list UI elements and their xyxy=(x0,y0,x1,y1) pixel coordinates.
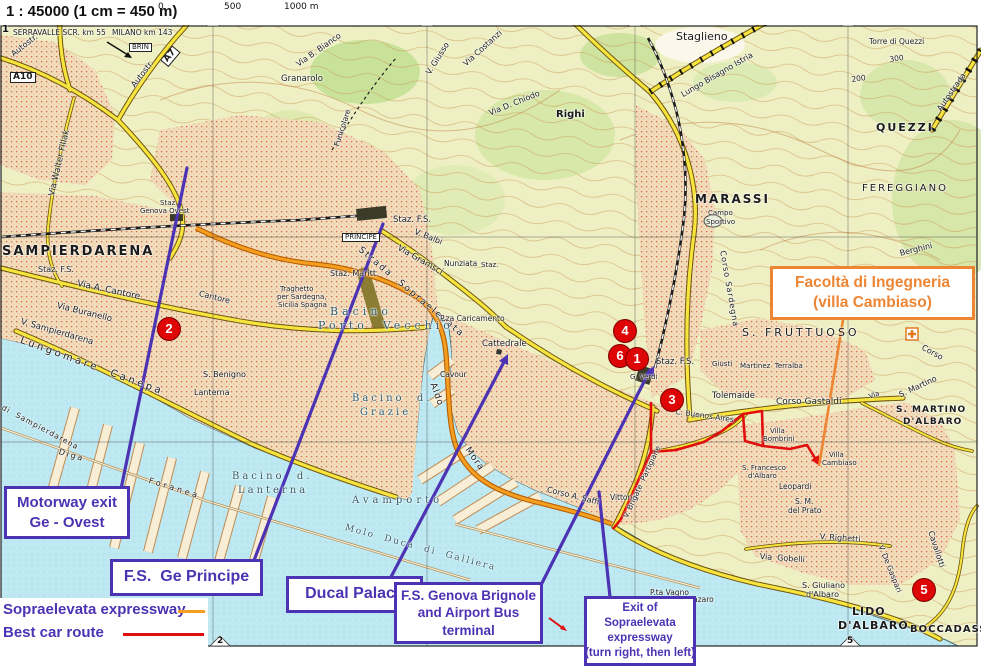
grid-tick-top-1: 1 xyxy=(2,24,9,35)
callout-line: F.S. Ge Principe xyxy=(124,567,249,588)
callout-line: Exit of xyxy=(622,601,657,616)
callout-line: expressway xyxy=(607,631,672,646)
legend-swatch-sopraelevata xyxy=(178,610,205,613)
legend-item-sopraelevata: Sopraelevata expressway xyxy=(0,598,208,621)
callout-line: Ge - Ovest xyxy=(29,513,104,533)
route-marker-4: 4 xyxy=(614,320,636,342)
scale-bar-label-0: 0 xyxy=(158,2,164,12)
callout-line: and Airport Bus xyxy=(418,604,520,622)
legend-item-best-route: Best car route xyxy=(0,621,208,644)
callout-line: Facoltà di Ingegneria xyxy=(795,273,950,293)
callout-line: Motorway exit xyxy=(17,493,117,513)
legend-label: Best car route xyxy=(3,624,104,641)
scale-bar-label-500: 500 xyxy=(224,2,241,12)
legend-swatch-best-route xyxy=(123,633,204,636)
map-header: 1 : 45000 (1 cm = 450 m) 0 500 1000 m xyxy=(0,0,981,25)
route-marker-2: 2 xyxy=(158,318,180,340)
marassi-stadium xyxy=(704,215,722,227)
callout-line: F.S. Genova Brignole xyxy=(401,587,536,605)
hospital-icon xyxy=(906,328,918,340)
scale-text: 1 : 45000 (1 cm = 450 m) xyxy=(6,3,177,20)
genoa-map: SERRAVALLE SCR. km 55MILANO km 143BRINAu… xyxy=(0,0,981,670)
callout-line: (villa Cambiaso) xyxy=(813,293,932,313)
scale-bar-label-1000: 1000 m xyxy=(284,2,319,12)
callout-motorway-exit: Motorway exitGe - Ovest xyxy=(4,486,130,539)
callout-line: Ducal Palace xyxy=(305,584,404,605)
callout-sopraelevata-exit: Exit ofSopraelevataexpressway(turn right… xyxy=(584,596,696,666)
cattedrale-mark xyxy=(496,349,502,355)
callout-facolta-ingegneria: Facoltà di Ingegneria(villa Cambiaso) xyxy=(770,266,975,320)
callout-fs-ge-principe: F.S. Ge Principe xyxy=(110,559,263,596)
grid-tick-bottom-5: 5 xyxy=(847,636,853,646)
legend-label: Sopraelevata expressway xyxy=(3,601,186,618)
route-marker-1: 1 xyxy=(626,348,648,370)
callout-line: Sopraelevata xyxy=(604,616,676,631)
bottom-margin xyxy=(0,647,981,670)
callout-line: (turn right, then left) xyxy=(585,646,695,661)
route-marker-3: 3 xyxy=(661,389,683,411)
map-legend: Sopraelevata expressway Best car route xyxy=(0,598,208,647)
callout-fs-genova-brignole: F.S. Genova Brignoleand Airport Bustermi… xyxy=(394,582,543,644)
grid-tick-bottom-2: 2 xyxy=(217,636,223,646)
callout-line: terminal xyxy=(442,622,495,640)
route-marker-5: 5 xyxy=(913,579,935,601)
